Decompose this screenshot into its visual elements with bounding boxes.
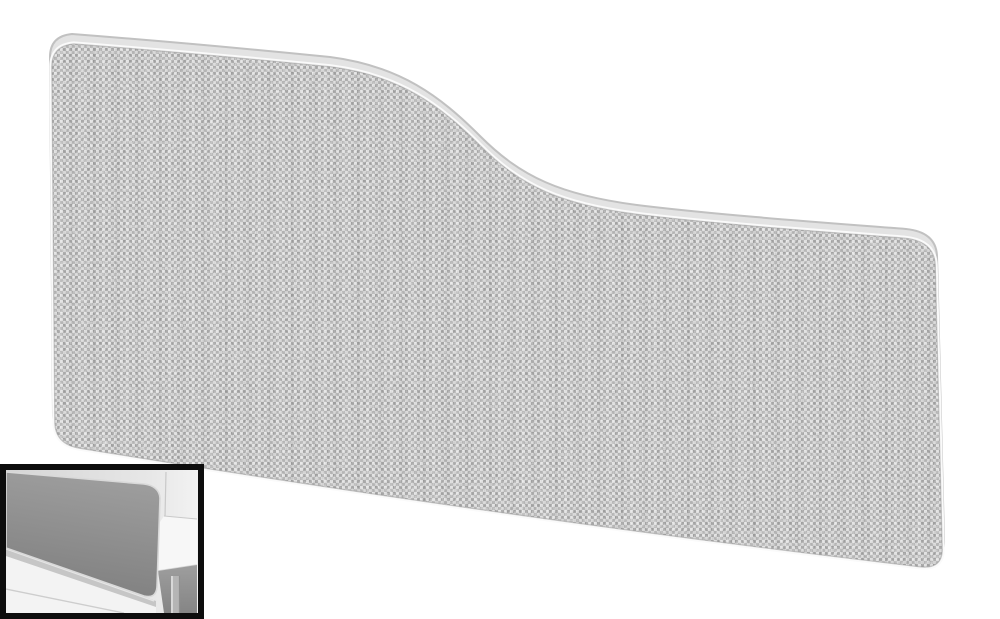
- inset-scene: [6, 470, 198, 613]
- inset-thumbnail: [0, 464, 204, 619]
- product-photo-stage: [0, 0, 1000, 619]
